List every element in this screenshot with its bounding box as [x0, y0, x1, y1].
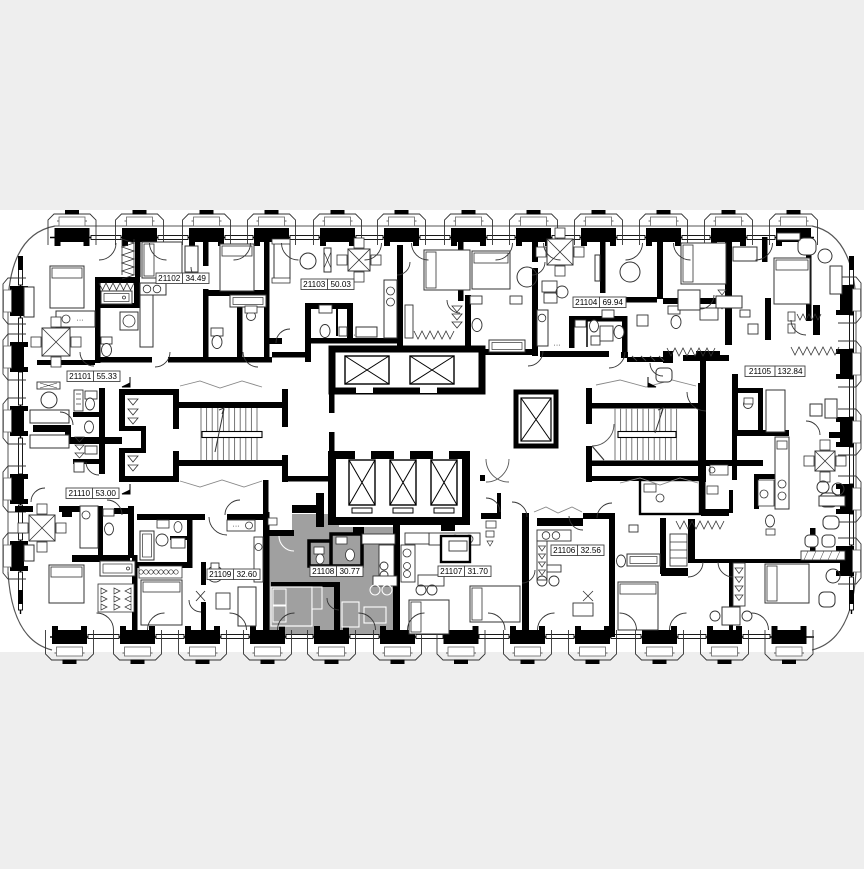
svg-text:21101: 21101 — [69, 372, 92, 381]
svg-text:21102: 21102 — [158, 274, 181, 283]
svg-text:21107: 21107 — [440, 567, 463, 576]
svg-text:32.60: 32.60 — [237, 570, 258, 579]
svg-text:21106: 21106 — [553, 546, 576, 555]
svg-text:···: ··· — [554, 342, 561, 349]
svg-text:50.03: 50.03 — [331, 280, 352, 289]
svg-text:132.84: 132.84 — [777, 367, 802, 376]
svg-text:21104: 21104 — [575, 298, 598, 307]
svg-text:32.56: 32.56 — [581, 546, 602, 555]
svg-text:69.94: 69.94 — [603, 298, 624, 307]
svg-text:21105: 21105 — [749, 367, 772, 376]
svg-text:···: ··· — [77, 317, 84, 324]
svg-text:···: ··· — [349, 332, 356, 339]
svg-text:34.49: 34.49 — [186, 274, 207, 283]
svg-text:55.33: 55.33 — [97, 372, 118, 381]
svg-text:21110: 21110 — [68, 489, 90, 498]
svg-text:···: ··· — [233, 523, 240, 530]
svg-text:53.00: 53.00 — [96, 489, 117, 498]
svg-text:21103: 21103 — [303, 280, 326, 289]
svg-text:21109: 21109 — [209, 570, 232, 579]
svg-text:31.70: 31.70 — [468, 567, 489, 576]
svg-text:30.77: 30.77 — [340, 567, 361, 576]
svg-text:21108: 21108 — [312, 567, 335, 576]
